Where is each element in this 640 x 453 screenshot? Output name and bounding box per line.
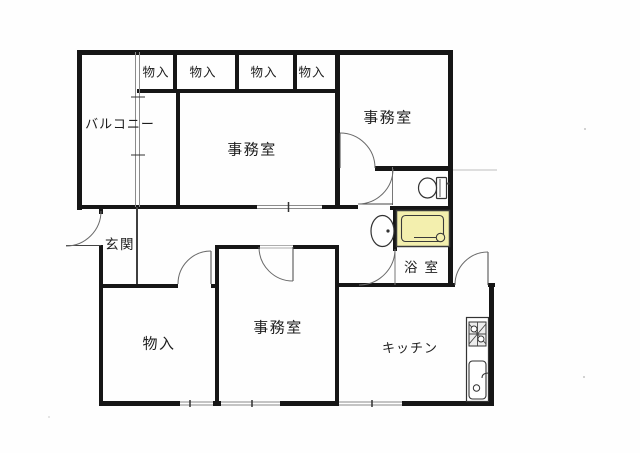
scan-speck [48,416,50,418]
floor-plan: 物入 物入 物入 物入 バルコニー 事務室 事務室 玄関 浴室 物入 事務室 キ… [0,0,640,453]
room-label-office-bottom: 事務室 [253,317,303,338]
room-label-closet-top-1: 物入 [142,62,169,81]
room-label-bathroom: 浴室 [397,256,445,276]
room-label-entrance: 玄関 [105,233,135,253]
room-label-kitchen: キッチン [382,338,438,357]
bathtub-icon [397,211,450,247]
washbasin-icon [371,216,394,247]
room-label-office-upper-right: 事務室 [363,107,413,128]
door-bathroom [359,249,395,285]
room-label-office-center: 事務室 [227,139,277,160]
door-kitchen-back [455,252,488,285]
room-label-closet-top-2: 物入 [189,62,216,81]
room-label-closet-top-3: 物入 [250,62,277,81]
kitchen-sink-icon [469,361,489,399]
room-label-closet-bottom: 物入 [142,333,175,354]
room-label-balcony: バルコニー [85,114,155,133]
room-label-closet-top-4: 物入 [298,62,325,81]
scanned-floor-plan-page: 物入 物入 物入 物入 バルコニー 事務室 事務室 玄関 浴室 物入 事務室 キ… [0,0,640,453]
kitchen-counter [467,318,490,402]
toilet-icon [419,178,450,199]
door-office-upper-right [340,133,375,168]
stove-icon [469,322,486,346]
scan-speck [583,376,585,378]
door-closet-bottom [178,251,211,284]
door-office-bottom [259,247,293,281]
scan-speck [584,128,586,130]
door-entrance [66,211,101,246]
window-lines [136,52,498,405]
door-toilet [358,167,393,205]
